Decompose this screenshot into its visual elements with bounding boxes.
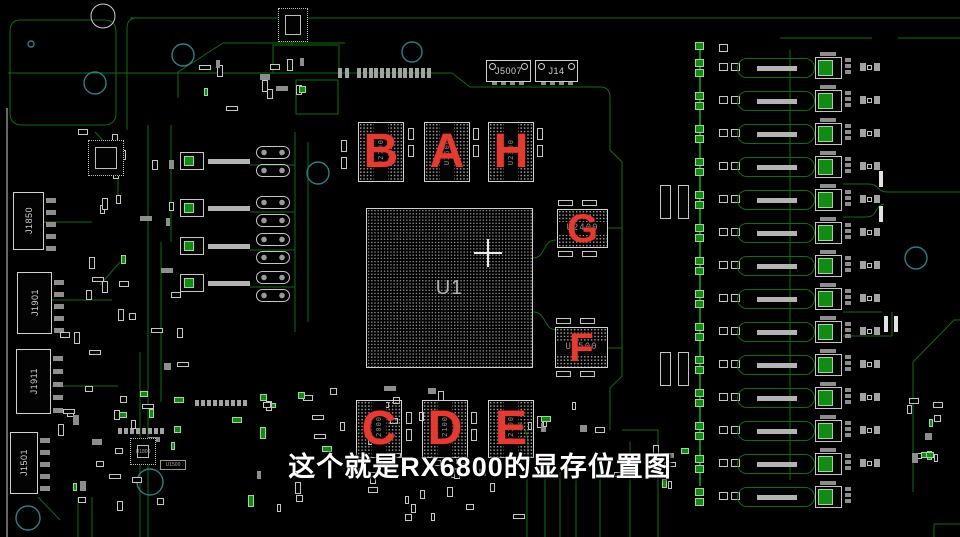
passive-component: [243, 400, 247, 406]
memory-label-b: B: [359, 123, 403, 181]
passive-component: [89, 350, 101, 355]
passive-component: [845, 103, 851, 107]
passive-component: [845, 169, 851, 173]
passive-component: [256, 271, 290, 284]
passive-component: [78, 497, 86, 503]
passive-component: [845, 289, 851, 293]
passive-component: [54, 292, 64, 297]
passive-component: [860, 261, 866, 269]
passive-component: [695, 422, 704, 430]
passive-component: [845, 400, 851, 404]
passive-component: [845, 322, 851, 326]
passive-component: [338, 68, 342, 78]
connector-j1911: J1911: [16, 349, 51, 414]
passive-component: [287, 59, 293, 71]
passive-component: [154, 428, 158, 434]
passive-component: [53, 382, 63, 387]
passive-component: [925, 433, 932, 440]
memory-label-h: H: [489, 123, 533, 181]
passive-component: [78, 129, 88, 135]
passive-component: [420, 490, 425, 499]
passive-component: [270, 64, 280, 70]
phase-outline: [737, 91, 815, 111]
passive-component: [216, 60, 220, 68]
passive-component: [102, 281, 108, 293]
passive-component: [695, 257, 704, 265]
passive-component: [884, 316, 888, 332]
passive-component: [818, 192, 833, 208]
passive-component: [177, 362, 189, 367]
passive-component: [719, 360, 728, 368]
memory-chip-g: U2400 G: [557, 209, 608, 248]
passive-component: [357, 68, 361, 78]
passive-component: [431, 513, 435, 521]
pin-hole: [538, 63, 545, 70]
passive-component: [207, 400, 211, 406]
gpu-designator: U1: [367, 209, 532, 367]
passive-component: [85, 386, 93, 392]
passive-component: [53, 369, 63, 374]
passive-component: [40, 486, 50, 491]
passive-component: [415, 68, 419, 78]
passive-component: [174, 397, 184, 403]
passive-component: [860, 162, 866, 170]
passive-component: [934, 415, 941, 422]
passive-component: [118, 428, 122, 434]
memory-chip-b: U2700 B: [358, 122, 404, 182]
passive-component: [874, 162, 880, 170]
passive-component: [695, 191, 704, 199]
passive-component: [256, 146, 290, 159]
passive-component: [58, 424, 64, 436]
passive-component: [260, 427, 266, 439]
passive-component: [232, 417, 242, 423]
passive-component: [256, 233, 290, 246]
passive-component: [695, 69, 704, 77]
passive-component: [471, 429, 477, 441]
passive-component: [695, 333, 704, 341]
passive-component: [580, 425, 587, 432]
passive-component: [820, 52, 836, 56]
passive-component: [845, 124, 851, 128]
gpu-chip: U1: [366, 208, 533, 368]
passive-component: [860, 426, 866, 434]
passive-component: [471, 412, 477, 424]
passive-component: [867, 230, 872, 235]
passive-component: [909, 398, 919, 404]
passive-component: [124, 428, 128, 434]
passive-component: [867, 428, 872, 433]
passive-component: [860, 228, 866, 236]
passive-component: [195, 400, 199, 406]
ic-body: [285, 15, 301, 35]
passive-component: [298, 392, 305, 399]
ic-body: [95, 147, 117, 169]
passive-component: [818, 357, 833, 373]
passive-component: [171, 292, 181, 298]
passive-component: [874, 360, 880, 368]
phase-outline: [737, 355, 815, 375]
passive-component: [374, 68, 378, 78]
passive-component: [314, 434, 326, 439]
passive-component: [818, 258, 833, 274]
passive-component: [248, 495, 254, 507]
passive-component: [92, 439, 102, 445]
passive-component: [867, 263, 872, 268]
passive-component: [595, 427, 605, 433]
passive-component: [695, 300, 704, 308]
passive-component: [719, 162, 728, 170]
passive-component: [466, 504, 474, 510]
passive-component: [874, 63, 880, 71]
passive-component: [695, 92, 704, 100]
passive-component: [874, 327, 880, 335]
passive-component: [537, 128, 543, 140]
passive-component: [368, 487, 378, 493]
passive-component: [386, 68, 390, 78]
passive-component: [695, 498, 704, 506]
passive-component: [149, 409, 154, 418]
passive-component: [874, 195, 880, 203]
passive-component: [148, 428, 152, 434]
passive-component: [860, 327, 866, 335]
passive-component: [860, 129, 866, 137]
passive-component: [820, 316, 836, 320]
passive-component: [184, 241, 194, 251]
passive-component: [53, 395, 63, 400]
passive-component: [695, 267, 704, 275]
passive-component: [719, 129, 728, 137]
passive-component: [237, 400, 241, 406]
passive-component: [695, 366, 704, 374]
passive-component: [136, 428, 140, 434]
passive-component: [473, 145, 479, 157]
passive-component: [54, 280, 64, 285]
passive-component: [54, 304, 64, 309]
passive-component: [558, 200, 573, 206]
passive-component: [845, 295, 851, 299]
passive-component: [63, 409, 75, 414]
passive-component: [860, 63, 866, 71]
passive-component: [818, 291, 833, 307]
passive-component: [845, 328, 851, 332]
passive-component: [341, 157, 347, 169]
passive-component: [695, 234, 704, 242]
phase-outline: [737, 223, 815, 243]
passive-component: [845, 487, 851, 491]
passive-component: [392, 68, 396, 78]
passive-component: [40, 438, 50, 443]
passive-component: [74, 332, 80, 344]
passive-component: [447, 487, 453, 497]
passive-component: [719, 426, 728, 434]
passive-component: [820, 151, 836, 155]
passive-component: [845, 268, 851, 272]
passive-component: [256, 214, 290, 227]
connector-label: J5007: [495, 66, 522, 76]
passive-component: [208, 281, 250, 286]
passive-component: [226, 106, 238, 111]
passive-component: [719, 228, 728, 236]
passive-component: [363, 68, 367, 78]
passive-component: [369, 68, 373, 78]
passive-component: [131, 420, 136, 429]
phase-outline: [737, 289, 815, 309]
passive-component: [256, 196, 290, 209]
passive-component: [345, 68, 349, 78]
passive-component: [403, 68, 407, 78]
passive-component: [719, 327, 728, 335]
passive-component: [820, 415, 836, 419]
passive-component: [140, 216, 152, 221]
passive-component: [152, 160, 158, 170]
passive-component: [695, 158, 704, 166]
passive-component: [409, 68, 413, 78]
passive-component: [845, 433, 851, 437]
passive-component: [818, 225, 833, 241]
passive-component: [719, 294, 728, 302]
pcb-layout-view: U1 U2700 B U2600 A U2300 H U2400 G U2500…: [0, 0, 960, 537]
passive-component: [719, 393, 728, 401]
phase-outline: [737, 322, 815, 342]
passive-component: [121, 255, 126, 264]
passive-component: [678, 352, 689, 386]
passive-component: [695, 224, 704, 232]
passive-component: [219, 400, 223, 406]
passive-component: [695, 290, 704, 298]
passive-component: [408, 145, 414, 157]
passive-component: [845, 256, 851, 260]
passive-component: [845, 97, 851, 101]
passive-component: [695, 42, 704, 50]
passive-component: [860, 195, 866, 203]
passive-component: [405, 496, 409, 504]
passive-component: [151, 328, 163, 333]
passive-component: [166, 218, 170, 226]
passive-component: [199, 65, 211, 70]
passive-component: [208, 159, 250, 164]
connector-j1850: J1850: [13, 192, 44, 250]
passive-component: [46, 234, 56, 239]
passive-component: [312, 415, 324, 420]
passive-component: [874, 294, 880, 302]
passive-component: [119, 412, 127, 418]
passive-component: [874, 228, 880, 236]
subtitle-caption: 这个就是RX6800的显存位置图: [0, 445, 960, 484]
passive-component: [92, 277, 104, 282]
pin-hole: [521, 63, 528, 70]
passive-component: [879, 206, 883, 222]
ic-chip: [278, 8, 308, 42]
passive-component: [845, 262, 851, 266]
passive-component: [820, 250, 836, 254]
passive-component: [818, 324, 833, 340]
passive-component: [164, 363, 171, 370]
phase-outline: [737, 124, 815, 144]
passive-component: [820, 349, 836, 353]
passive-component: [558, 251, 573, 257]
passive-component: [818, 126, 833, 142]
passive-component: [845, 301, 851, 305]
passive-component: [695, 323, 704, 331]
passive-component: [845, 91, 851, 95]
passive-component: [860, 360, 866, 368]
passive-component: [845, 235, 851, 239]
passive-component: [184, 203, 194, 213]
passive-component: [867, 65, 872, 70]
passive-component: [296, 495, 303, 502]
passive-component: [695, 201, 704, 209]
passive-component: [845, 421, 851, 425]
passive-component: [845, 223, 851, 227]
passive-component: [820, 283, 836, 287]
passive-component: [582, 251, 597, 257]
passive-component: [695, 356, 704, 364]
passive-component: [879, 171, 883, 187]
pin-hole: [489, 63, 496, 70]
connector-label: J14: [548, 66, 564, 76]
passive-component: [117, 501, 123, 511]
passive-component: [867, 98, 872, 103]
pin-hole: [568, 63, 575, 70]
passive-component: [114, 410, 120, 420]
passive-component: [556, 318, 571, 324]
passive-component: [201, 400, 205, 406]
passive-component: [719, 63, 728, 71]
memory-chip-f: U2500 F: [555, 327, 608, 368]
phase-outline: [737, 58, 815, 78]
passive-component: [184, 156, 194, 166]
passive-component: [695, 389, 704, 397]
passive-component: [867, 164, 872, 169]
passive-component: [340, 422, 345, 431]
passive-component: [169, 160, 174, 169]
passive-component: [256, 289, 290, 302]
passive-component: [262, 80, 268, 92]
passive-component: [398, 68, 402, 78]
passive-component: [582, 200, 597, 206]
passive-component: [695, 432, 704, 440]
passive-component: [660, 185, 671, 219]
passive-component: [874, 393, 880, 401]
connector-label: J1901: [30, 289, 40, 316]
passive-component: [46, 198, 56, 203]
passive-component: [907, 405, 912, 414]
passive-component: [53, 408, 63, 413]
passive-component: [421, 68, 425, 78]
passive-component: [860, 96, 866, 104]
passive-component: [405, 514, 412, 521]
passive-component: [874, 96, 880, 104]
passive-component: [225, 400, 229, 406]
passive-component: [256, 164, 290, 177]
passive-component: [845, 202, 851, 206]
connector-j1901: J1901: [17, 272, 52, 334]
passive-component: [845, 58, 851, 62]
passive-component: [160, 428, 164, 434]
passive-component: [867, 362, 872, 367]
passive-component: [845, 361, 851, 365]
passive-component: [86, 290, 92, 300]
passive-component: [845, 367, 851, 371]
passive-component: [695, 102, 704, 110]
crosshair-marker-icon: [487, 239, 489, 267]
passive-component: [541, 416, 551, 422]
passive-component: [845, 130, 851, 134]
passive-component: [406, 429, 412, 441]
passive-component: [428, 388, 436, 394]
phase-outline: [737, 157, 815, 177]
passive-component: [874, 129, 880, 137]
passive-component: [820, 382, 836, 386]
connector-label: J1911: [29, 368, 39, 394]
passive-component: [818, 423, 833, 439]
passive-component: [116, 195, 121, 204]
passive-component: [60, 332, 70, 338]
passive-component: [161, 268, 173, 273]
passive-component: [695, 59, 704, 67]
passive-component: [874, 261, 880, 269]
passive-component: [845, 136, 851, 140]
passive-component: [719, 261, 728, 269]
phase-outline: [737, 421, 815, 441]
passive-component: [580, 318, 595, 324]
passive-component: [845, 493, 851, 497]
passive-component: [142, 404, 154, 409]
passive-component: [695, 399, 704, 407]
passive-component: [572, 402, 576, 410]
passive-component: [818, 93, 833, 109]
passive-component: [73, 415, 79, 425]
passive-component: [54, 316, 64, 321]
passive-component: [300, 58, 304, 66]
passive-component: [263, 402, 271, 408]
passive-component: [231, 400, 235, 406]
passive-component: [140, 391, 148, 397]
passive-component: [473, 128, 479, 140]
passive-component: [157, 498, 164, 505]
passive-component: [330, 388, 337, 395]
passive-component: [408, 128, 414, 140]
passive-component: [845, 388, 851, 392]
passive-component: [867, 197, 872, 202]
passive-component: [208, 206, 250, 211]
passive-component: [820, 118, 836, 122]
passive-component: [384, 386, 396, 391]
passive-component: [867, 395, 872, 400]
passive-component: [820, 85, 836, 89]
passive-component: [860, 294, 866, 302]
passive-component: [73, 483, 77, 491]
passive-component: [427, 68, 431, 78]
passive-component: [556, 371, 571, 377]
memory-label-a: A: [425, 123, 469, 181]
passive-component: [406, 412, 412, 424]
phase-outline: [737, 388, 815, 408]
passive-component: [845, 499, 851, 503]
passive-component: [719, 44, 728, 52]
passive-component: [299, 86, 306, 93]
passive-component: [380, 68, 384, 78]
passive-component: [118, 309, 124, 321]
phase-outline: [737, 487, 815, 507]
passive-component: [719, 96, 728, 104]
passive-component: [845, 394, 851, 398]
passive-component: [818, 159, 833, 175]
passive-component: [818, 390, 833, 406]
passive-component: [537, 145, 543, 157]
passive-component: [695, 168, 704, 176]
